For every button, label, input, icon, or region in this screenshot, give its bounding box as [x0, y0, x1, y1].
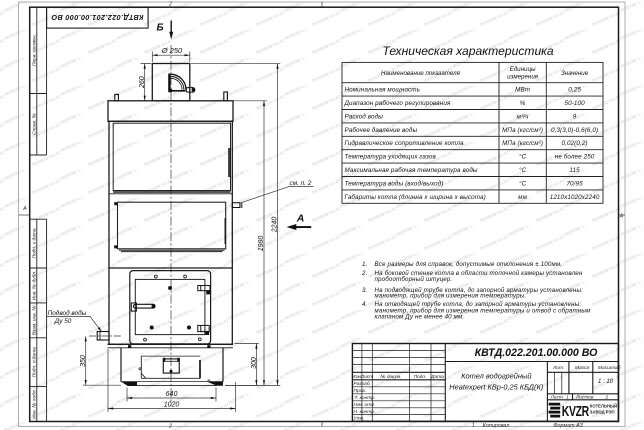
svg-text:МПа (кгс/см²): МПа (кгс/см²)	[502, 140, 543, 147]
svg-text:А: А	[619, 214, 624, 220]
svg-text:Инв. № дубл.: Инв. № дубл.	[32, 271, 38, 301]
svg-text:Лит.: Лит.	[552, 365, 564, 371]
svg-text:№ докум.: № докум.	[380, 374, 401, 380]
svg-text:Ду 50: Ду 50	[54, 318, 72, 325]
svg-text:Пров.: Пров.	[354, 388, 367, 394]
svg-text:Перв. примен.: Перв. примен.	[32, 34, 38, 66]
svg-text:1020: 1020	[164, 402, 180, 409]
svg-text:115: 115	[569, 167, 580, 174]
svg-text:КВТД.022.201.00.000 ВО: КВТД.022.201.00.000 ВО	[475, 347, 599, 359]
svg-text:Копировал: Копировал	[483, 423, 510, 429]
svg-text:Диапазон рабочего регулировани: Диапазон рабочего регулирования	[344, 99, 451, 107]
svg-text:Подп. и дата: Подп. и дата	[32, 347, 38, 377]
svg-text:Рабочее давление воды: Рабочее давление воды	[345, 126, 418, 134]
svg-text:350: 350	[80, 355, 87, 367]
svg-text:640: 640	[166, 391, 178, 398]
svg-text:4.: 4.	[362, 301, 367, 308]
svg-text:2: 2	[168, 2, 172, 8]
svg-text:манометр, прибор для измерения: манометр, прибор для измерения температу…	[375, 293, 527, 300]
svg-text:клапаном Ду не менее 40 мм.: клапаном Ду не менее 40 мм.	[375, 313, 465, 320]
svg-text:МВт: МВт	[515, 87, 530, 94]
svg-text:Расход воды: Расход воды	[345, 112, 384, 120]
svg-text:Габариты котла (длинна х ширин: Габариты котла (длинна х ширина х высота…	[345, 193, 486, 201]
svg-text:КОТЕЛЬНЫЙ: КОТЕЛЬНЫЙ	[590, 404, 617, 409]
svg-text:А: А	[22, 206, 27, 212]
svg-text:Формат А3: Формат А3	[553, 423, 583, 429]
svg-text:2.: 2.	[361, 270, 367, 277]
svg-text:2: 2	[605, 395, 609, 401]
svg-text:0,3(3,0)-0,6(6,0): 0,3(3,0)-0,6(6,0)	[551, 127, 598, 134]
svg-text:измерения: измерения	[507, 74, 539, 81]
svg-text:Дата: Дата	[430, 374, 444, 380]
svg-text:Утв.: Утв.	[354, 416, 365, 422]
svg-text:Разраб.: Разраб.	[354, 381, 371, 387]
svg-text:Heatexpert КВр-0,25 КБД(К): Heatexpert КВр-0,25 КБД(К)	[449, 383, 544, 392]
svg-text:Техническая характеристика: Техническая характеристика	[382, 44, 554, 58]
svg-text:Номинальная мощность: Номинальная мощность	[345, 87, 421, 94]
svg-text:Листов: Листов	[575, 395, 594, 401]
svg-text:50-100: 50-100	[564, 100, 585, 107]
svg-text:Справ. №: Справ. №	[32, 113, 38, 135]
svg-text:Значение: Значение	[561, 70, 589, 77]
svg-text:Температура уходящих газов: Температура уходящих газов	[345, 153, 437, 161]
svg-text:1.: 1.	[362, 261, 367, 268]
svg-text:%: %	[520, 100, 526, 107]
svg-text:Т. контр.: Т. контр.	[355, 395, 376, 401]
svg-text:Все размеры для справок, допус: Все размеры для справок, допустимые откл…	[375, 261, 563, 268]
svg-text:Нач. отд.: Нач. отд.	[354, 402, 376, 408]
svg-text:Подвод воды: Подвод воды	[48, 309, 87, 317]
svg-text:пробоотборный штуцер.: пробоотборный штуцер.	[375, 276, 453, 283]
svg-text:Наименование показателя: Наименование показателя	[381, 70, 461, 77]
svg-text:ЗАВОД РЭП: ЗАВОД РЭП	[590, 410, 615, 415]
svg-text:260: 260	[139, 76, 146, 89]
svg-text:300: 300	[251, 357, 258, 369]
svg-text:1 : 10: 1 : 10	[598, 379, 614, 385]
svg-text:1: 1	[566, 395, 569, 401]
svg-text:КВТД.022.201.00.000 ВО: КВТД.022.201.00.000 ВО	[51, 13, 143, 22]
svg-text:9: 9	[573, 113, 577, 120]
svg-text:Б: Б	[156, 23, 163, 34]
svg-text:Масштаб: Масштаб	[598, 365, 621, 371]
svg-text:2240: 2240	[272, 217, 279, 234]
svg-text:1: 1	[472, 423, 475, 429]
svg-text:Максимальная рабочая температу: Максимальная рабочая температура воды	[345, 166, 478, 174]
svg-text:3.: 3.	[362, 287, 367, 294]
svg-text:Температура воды (вход/выход): Температура воды (вход/выход)	[345, 179, 444, 187]
svg-text:см. п. 2: см. п. 2	[290, 180, 312, 187]
svg-text:Подп. и дата: Подп. и дата	[32, 228, 38, 258]
svg-text:Лист: Лист	[550, 395, 563, 401]
svg-text:Гидравлическое сопротивление к: Гидравлическое сопротивление котла	[345, 139, 464, 147]
svg-text:Взам. инв. №: Взам. инв. №	[32, 305, 38, 335]
svg-text:70/95: 70/95	[566, 180, 583, 187]
svg-text:Н. контр.: Н. контр.	[354, 409, 376, 415]
svg-text:0,02(0,2): 0,02(0,2)	[562, 140, 588, 147]
svg-text:2: 2	[168, 424, 172, 430]
svg-text:не более 250: не более 250	[555, 153, 595, 161]
svg-text:Котел водогрейный: Котел водогрейный	[461, 372, 531, 381]
svg-text:°С: °С	[519, 179, 527, 187]
svg-text:1980: 1980	[258, 236, 265, 252]
svg-text:МПа (кгс/см²): МПа (кгс/см²)	[502, 127, 543, 134]
svg-text:KVZR: KVZR	[562, 403, 589, 419]
svg-text:м³/ч: м³/ч	[517, 113, 529, 120]
svg-text:А: А	[296, 213, 305, 225]
svg-text:Масса: Масса	[575, 365, 590, 371]
svg-text:°С: °С	[519, 166, 527, 174]
svg-text:Ø 250: Ø 250	[161, 46, 183, 55]
svg-text:Подп.: Подп.	[414, 374, 427, 380]
svg-text:0,25: 0,25	[568, 87, 581, 94]
svg-text:1210х1020х2240: 1210х1020х2240	[550, 194, 600, 201]
svg-text:Лист: Лист	[360, 374, 373, 380]
svg-text:мм: мм	[518, 194, 527, 201]
svg-text:Единицы: Единицы	[510, 66, 536, 73]
svg-text:Инв. № подл.: Инв. № подл.	[32, 389, 38, 419]
svg-text:°С: °С	[519, 153, 527, 161]
